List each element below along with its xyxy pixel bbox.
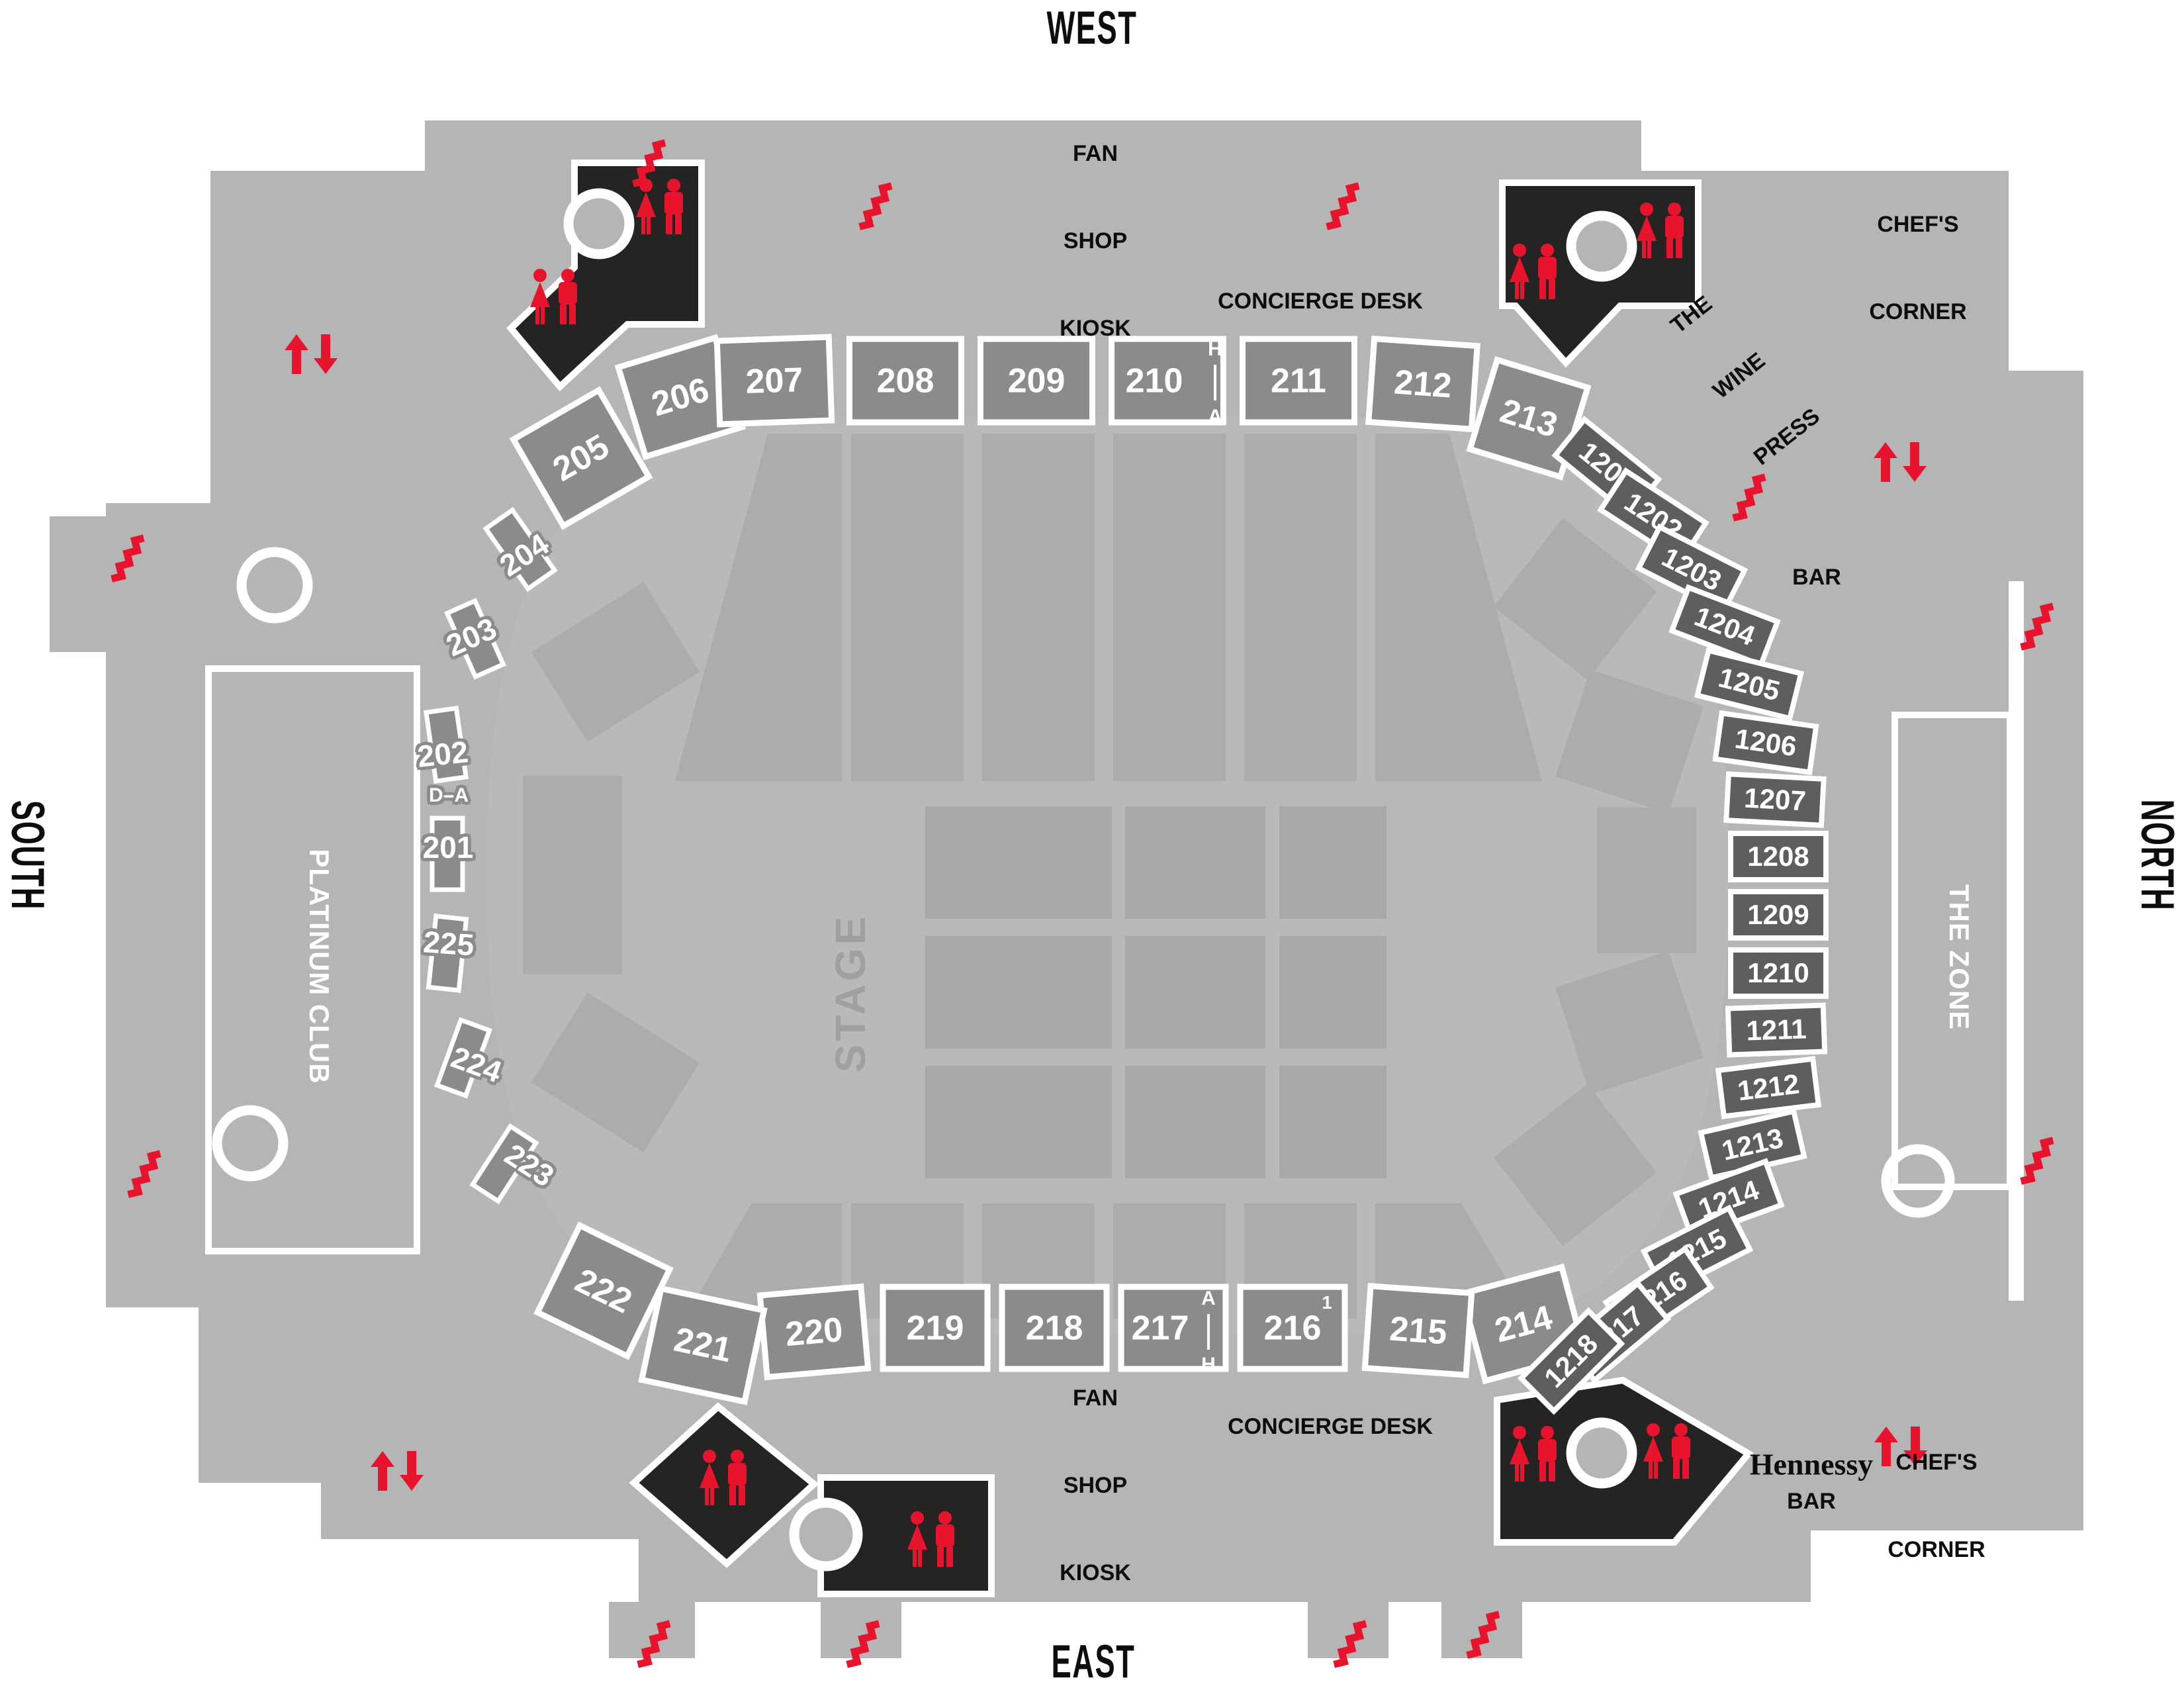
section-211[interactable]: 211 (1240, 336, 1357, 426)
section-217-row-bottom: H (1201, 1354, 1216, 1376)
section-219[interactable]: 219 (880, 1284, 991, 1372)
fan-shop-line: FAN (1060, 139, 1131, 168)
section-1210-label: 1210 (1747, 957, 1809, 989)
elevator-circle-icon (1571, 216, 1632, 277)
section-210-label: 210 (1126, 361, 1183, 400)
fan-shop-kiosk-label-west: FAN SHOP KIOSK (1060, 81, 1131, 401)
section-210-row-line (1214, 365, 1216, 400)
direction-north: NORTH (2130, 800, 2184, 912)
section-216-row-marker: 1 (1322, 1292, 1332, 1313)
concourse-north-strip (2024, 581, 2083, 1301)
section-210-row-top: H (1208, 338, 1222, 361)
section-208-label: 208 (877, 361, 934, 400)
section-209-label: 209 (1008, 361, 1066, 400)
elevator-circle-icon (1571, 1423, 1632, 1483)
section-201-label: 201 (423, 829, 474, 865)
section-217-label: 217 (1132, 1308, 1189, 1348)
section-1212-label: 1212 (1736, 1068, 1801, 1107)
chefs-corner-line: CORNER (1869, 297, 1966, 326)
section-217-row-top: A (1201, 1288, 1216, 1310)
section-1208-label: 1208 (1747, 841, 1809, 872)
section-217-row-line (1207, 1314, 1210, 1350)
section-222-label: 222 (569, 1260, 638, 1321)
platinum-club-label: PLATINUM CLUB (303, 849, 335, 1084)
chefs-corner-label-southeast: CHEF'S CORNER (1888, 1389, 1985, 1622)
section-215-label: 215 (1388, 1309, 1449, 1352)
section-1209[interactable]: 1209 (1728, 889, 1829, 941)
section-212[interactable]: 212 (1365, 336, 1480, 432)
section-210-row-bottom: A (1208, 406, 1222, 428)
section-1207-label: 1207 (1743, 782, 1807, 818)
section-213-label: 213 (1496, 391, 1563, 446)
chefs-corner-line: CHEF'S (1869, 210, 1966, 239)
arena-concourse-map: PLATINUM CLUB THE ZONE STAGE 205 206 207… (0, 0, 2184, 1688)
section-219-label: 219 (907, 1308, 964, 1348)
the-zone-label: THE ZONE (1943, 884, 1975, 1030)
section-221-label: 221 (670, 1320, 735, 1371)
fan-shop-line: KIOSK (1060, 314, 1131, 343)
section-207-label: 207 (745, 360, 804, 402)
fan-shop-line: FAN (1060, 1383, 1131, 1413)
wine-press-line: WINE (1702, 342, 1778, 410)
section-208[interactable]: 208 (846, 336, 964, 426)
section-1207[interactable]: 1207 (1723, 771, 1827, 828)
fan-shop-line: SHOP (1060, 1471, 1131, 1500)
section-212-label: 212 (1393, 362, 1453, 406)
section-1213-label: 1213 (1719, 1122, 1786, 1167)
the-zone-area[interactable]: THE ZONE (1891, 712, 2013, 1190)
elevator-circle-icon (569, 193, 629, 254)
section-1205-label: 1205 (1715, 661, 1783, 707)
stage-label: STAGE (826, 914, 875, 1073)
event-floor-blocks (925, 806, 1387, 1178)
rows-201-202-marker: D–A (429, 784, 469, 807)
section-1211[interactable]: 1211 (1725, 1002, 1828, 1057)
section-214-label: 214 (1490, 1297, 1556, 1350)
fan-shop-kiosk-label-east: FAN SHOP KIOSK (1060, 1325, 1131, 1646)
platinum-club-area[interactable]: PLATINUM CLUB (205, 665, 420, 1254)
wine-press-line: THE (1654, 281, 1730, 349)
section-202-label: 202 (416, 733, 470, 774)
section-1204-label: 1204 (1690, 600, 1759, 652)
section-225-label: 225 (422, 923, 475, 962)
fan-shop-line: SHOP (1060, 226, 1131, 256)
wine-press-line: PRESS (1749, 403, 1825, 471)
section-211-label: 211 (1271, 361, 1326, 400)
hennessy-bar-brand: Hennessy (1750, 1447, 1874, 1482)
hennessy-bar-label: BAR (1787, 1487, 1836, 1516)
section-205-label: 205 (546, 426, 615, 489)
concourse-left-alcove (50, 516, 108, 652)
direction-south: SOUTH (1, 800, 55, 910)
section-1211-label: 1211 (1746, 1013, 1807, 1047)
concierge-desk-label-west: CONCIERGE DESK (1218, 287, 1423, 316)
elevator-circle-icon (794, 1503, 858, 1566)
concierge-desk-label-east: CONCIERGE DESK (1228, 1412, 1433, 1441)
chefs-corner-line: CORNER (1888, 1535, 1985, 1564)
direction-west: WEST (1047, 1, 1138, 55)
section-207[interactable]: 207 (714, 334, 835, 427)
section-1210[interactable]: 1210 (1728, 947, 1829, 999)
bar-label-north: BAR (1792, 563, 1841, 592)
section-220-label: 220 (784, 1309, 844, 1354)
section-215[interactable]: 215 (1362, 1283, 1475, 1378)
section-1209-label: 1209 (1747, 899, 1809, 931)
chefs-corner-label-north: CHEF'S CORNER (1869, 152, 1966, 385)
fan-shop-line: KIOSK (1060, 1558, 1131, 1587)
chefs-corner-line: CHEF'S (1888, 1448, 1985, 1477)
section-1208[interactable]: 1208 (1728, 831, 1829, 882)
section-1206-label: 1206 (1733, 723, 1798, 763)
section-206-label: 206 (647, 370, 714, 425)
section-220[interactable]: 220 (757, 1284, 872, 1381)
section-216-label: 216 (1264, 1308, 1322, 1348)
